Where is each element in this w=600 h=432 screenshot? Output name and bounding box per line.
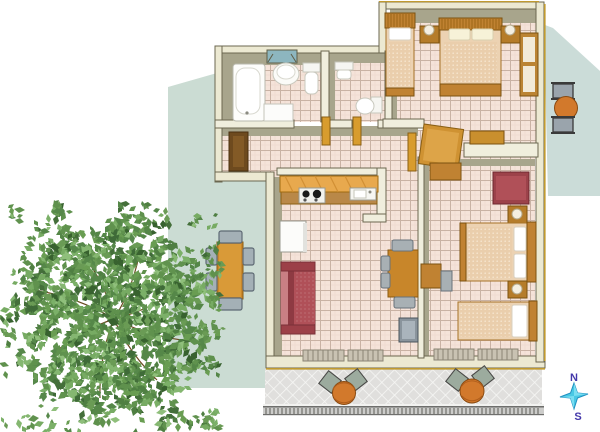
svg-text:N: N [570,372,578,384]
svg-text:S: S [574,411,581,423]
